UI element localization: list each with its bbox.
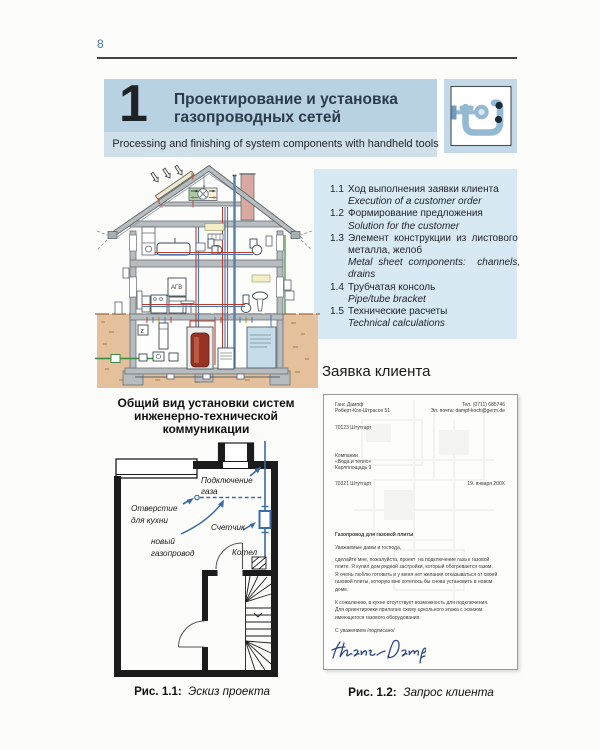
svg-text:для кухни: для кухни — [131, 516, 168, 525]
svg-text:Котел: Котел — [232, 548, 257, 557]
svg-text:Отверстие: Отверстие — [131, 504, 178, 513]
svg-text:новый: новый — [151, 537, 175, 546]
svg-text:газопровод: газопровод — [151, 549, 195, 558]
svg-text:Подключение: Подключение — [201, 476, 253, 485]
svg-text:газа: газа — [201, 487, 218, 496]
svg-text:АГВ: АГВ — [171, 285, 182, 291]
svg-text:z: z — [141, 328, 145, 335]
svg-text:Счетчик: Счетчик — [211, 523, 246, 532]
